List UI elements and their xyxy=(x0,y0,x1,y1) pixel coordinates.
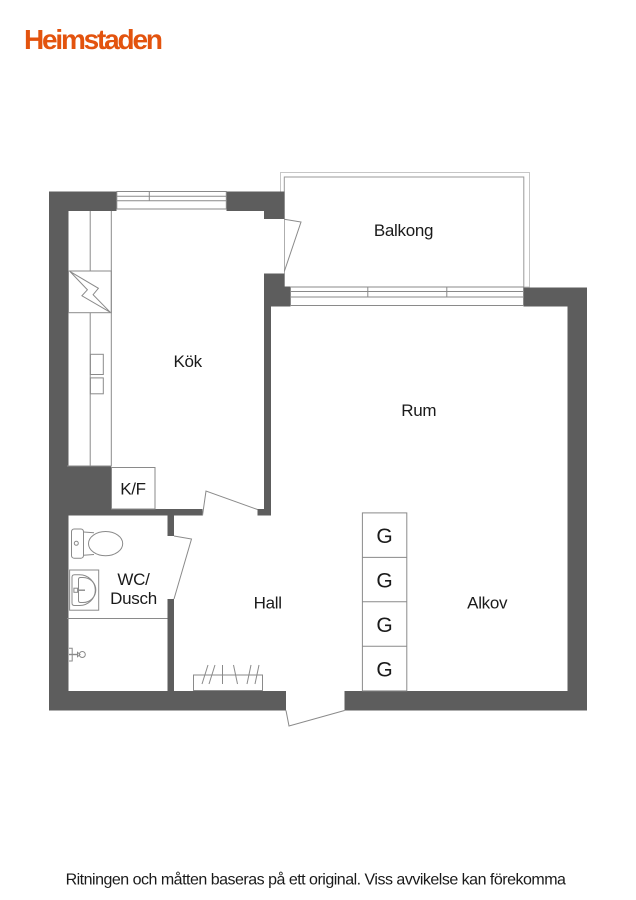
svg-text:K/F: K/F xyxy=(120,480,146,499)
svg-text:Ritningen och måtten baseras p: Ritningen och måtten baseras på ett orig… xyxy=(66,871,566,889)
svg-text:Hall: Hall xyxy=(254,594,282,613)
svg-text:G: G xyxy=(376,570,392,593)
svg-text:Dusch: Dusch xyxy=(110,589,157,608)
svg-text:Heimstaden: Heimstaden xyxy=(24,24,162,55)
svg-text:Balkong: Balkong xyxy=(374,221,433,240)
svg-text:Rum: Rum xyxy=(401,401,436,420)
svg-text:WC/: WC/ xyxy=(117,570,150,589)
svg-text:G: G xyxy=(376,614,392,637)
svg-text:G: G xyxy=(376,525,392,548)
svg-text:Kök: Kök xyxy=(173,352,202,371)
svg-text:Alkov: Alkov xyxy=(467,594,508,613)
svg-text:G: G xyxy=(376,659,392,682)
